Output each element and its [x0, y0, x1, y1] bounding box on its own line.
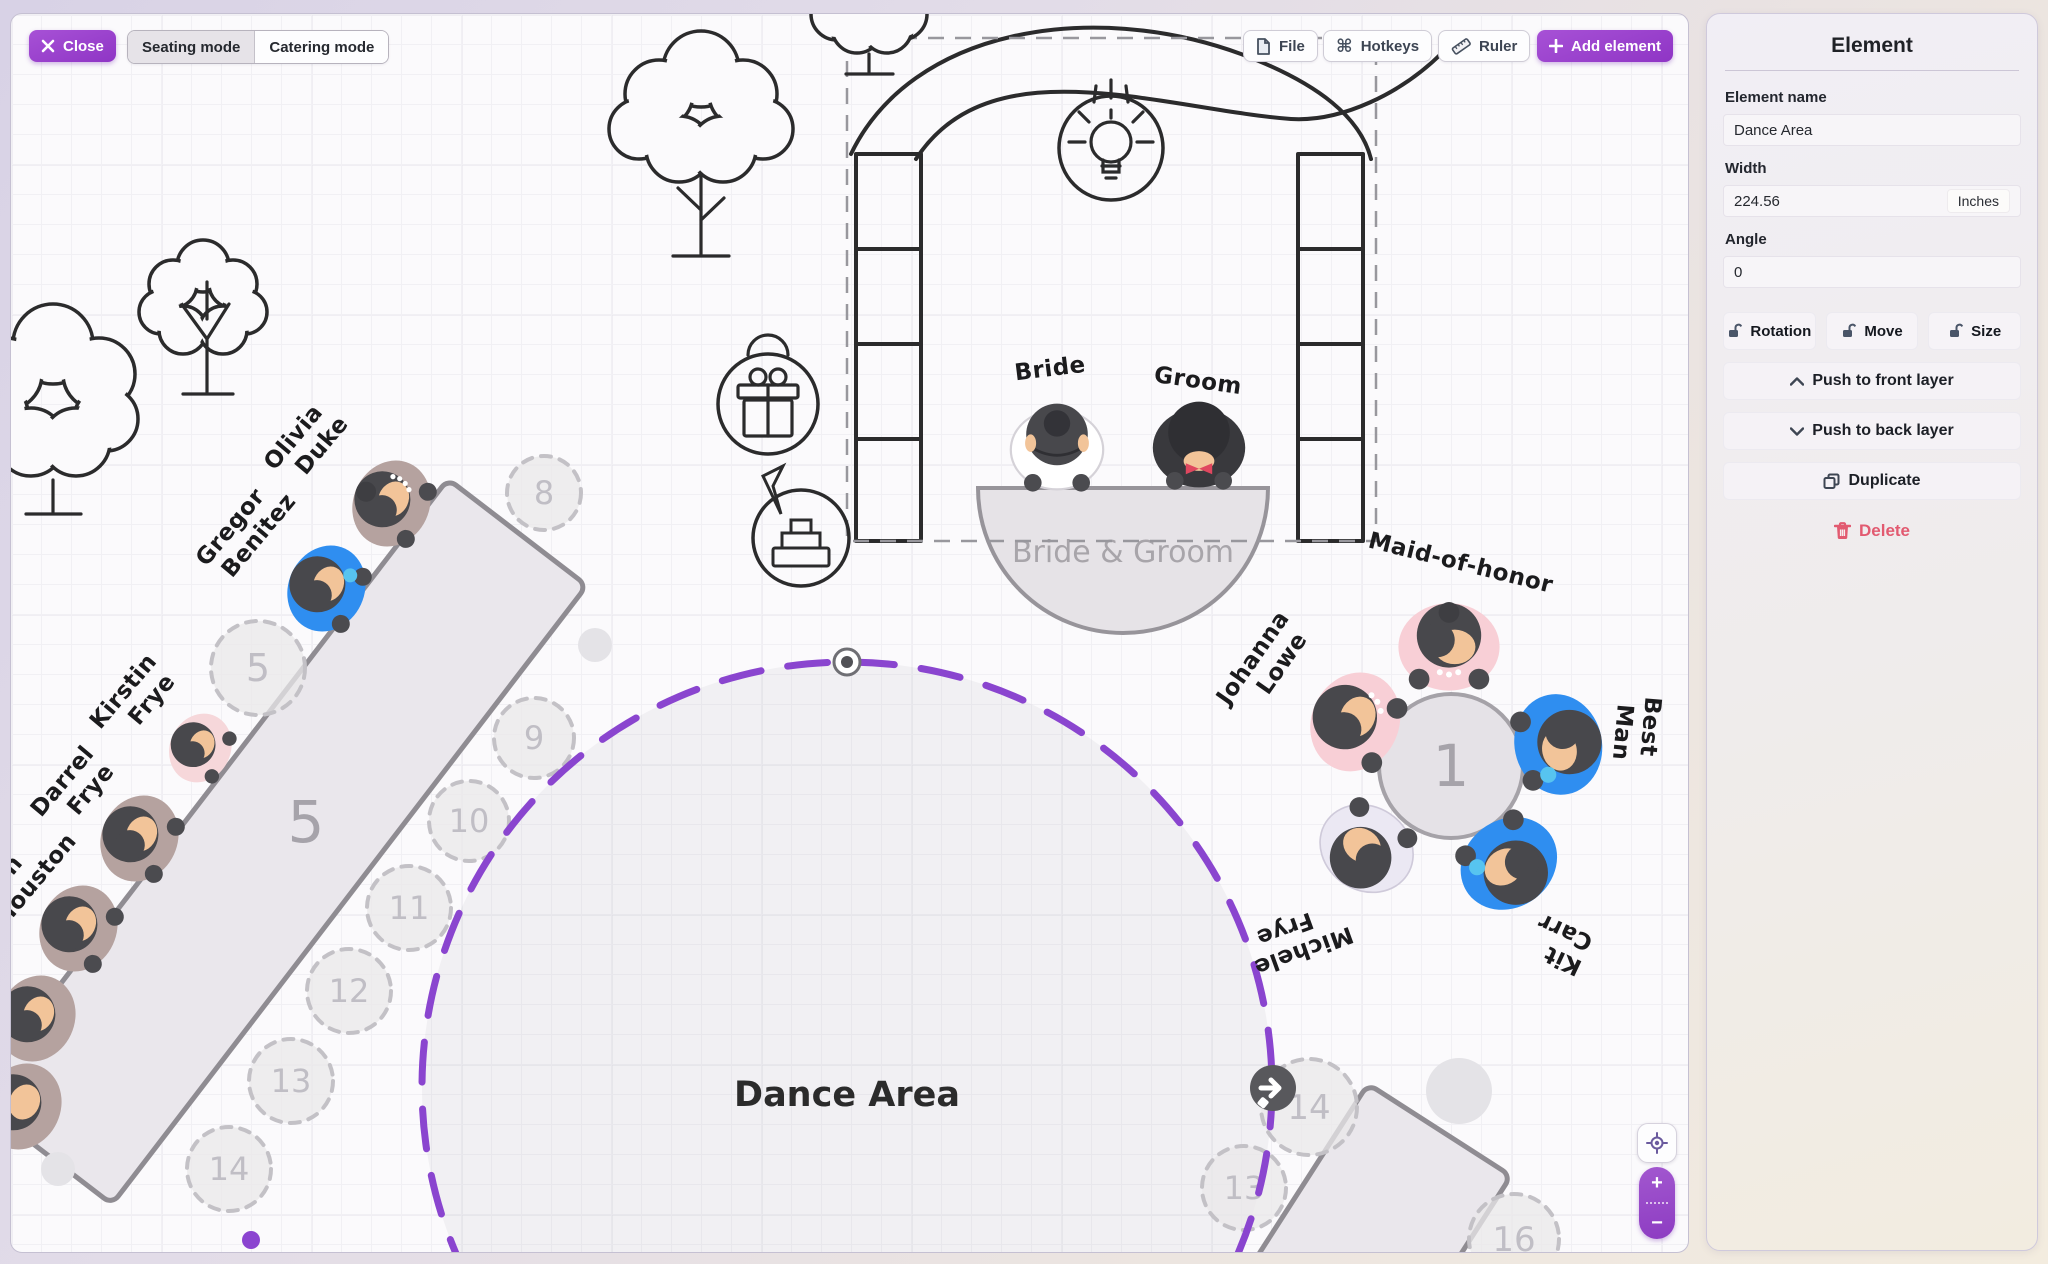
trash-icon	[1834, 522, 1851, 540]
svg-text:10: 10	[449, 802, 490, 840]
width-input[interactable]: 224.56 Inches	[1723, 185, 2021, 217]
duplicate-icon	[1823, 473, 1840, 490]
svg-text:Best: Best	[1634, 696, 1665, 758]
tree-small-left[interactable]	[139, 240, 267, 394]
svg-text:Bride: Bride	[1013, 352, 1087, 386]
svg-text:5: 5	[246, 646, 270, 690]
svg-text:11: 11	[389, 889, 430, 927]
seat-placeholder	[41, 1152, 75, 1186]
zoom-in-button[interactable]: +	[1651, 1173, 1663, 1193]
element-name-label: Element name	[1725, 89, 2019, 106]
chevron-down-icon	[1790, 427, 1804, 436]
delete-button[interactable]: Delete	[1723, 514, 2021, 548]
svg-text:Man: Man	[1607, 703, 1638, 761]
add-element-button[interactable]: Add element	[1537, 30, 1673, 62]
guest-label-michele: Michele Frye	[1241, 895, 1356, 980]
guest-label-maid-of-honor: Maid-of-honor	[1366, 528, 1556, 599]
lock-open-icon	[1841, 323, 1857, 339]
tree-top-clipped[interactable]	[811, 14, 927, 74]
tree-left-edge[interactable]	[11, 304, 138, 514]
svg-text:Groom: Groom	[1152, 362, 1243, 400]
seat-placeholder	[578, 628, 612, 662]
svg-text:14: 14	[209, 1150, 250, 1188]
seating-mode-tab[interactable]: Seating mode	[128, 31, 254, 63]
close-button[interactable]: Close	[29, 30, 116, 62]
zoom-divider	[1646, 1202, 1668, 1204]
lock-open-icon	[1727, 323, 1743, 339]
groom-label: Groom	[1152, 362, 1243, 400]
svg-text:12: 12	[329, 972, 370, 1010]
gift-icon[interactable]	[718, 335, 818, 454]
command-icon: ⌘	[1336, 36, 1353, 57]
svg-text:9: 9	[524, 719, 544, 757]
recenter-button[interactable]	[1637, 1123, 1677, 1163]
lock-move-button[interactable]: Move	[1826, 312, 1919, 350]
mode-switcher: Seating mode Catering mode	[127, 30, 389, 64]
svg-text:16: 16	[1492, 1220, 1535, 1252]
width-label: Width	[1725, 160, 2019, 177]
tree-top-center[interactable]	[609, 31, 793, 256]
zoom-out-button[interactable]: −	[1651, 1213, 1663, 1233]
lock-open-icon	[1948, 323, 1964, 339]
file-button[interactable]: File	[1243, 30, 1318, 62]
lock-rotation-button[interactable]: Rotation	[1723, 312, 1816, 350]
element-panel: Element Element name Dance Area Width 22…	[1706, 13, 2038, 1251]
seat-placeholder	[1426, 1058, 1492, 1124]
groom-avatar[interactable]	[1153, 402, 1245, 490]
duplicate-button[interactable]: Duplicate	[1723, 462, 2021, 500]
guest-label-kit: Kit Carr	[1522, 908, 1597, 980]
guest-avatar-maid-of-honor[interactable]	[1398, 602, 1499, 691]
svg-text:13: 13	[271, 1062, 312, 1100]
cake-icon[interactable]	[753, 466, 849, 586]
lock-buttons-row: Rotation Move Size	[1723, 312, 2021, 350]
wedding-arch[interactable]	[851, 28, 1443, 541]
hotkeys-button[interactable]: ⌘ Hotkeys	[1323, 30, 1432, 62]
bride-label: Bride	[1013, 352, 1087, 386]
svg-text:Maid-of-honor: Maid-of-honor	[1366, 528, 1556, 599]
catering-mode-tab[interactable]: Catering mode	[254, 31, 388, 63]
angle-input[interactable]: 0	[1723, 256, 2021, 288]
plus-icon	[1549, 39, 1563, 53]
dance-area-rotate-handle[interactable]	[834, 649, 860, 675]
dance-area-resize-handle[interactable]	[1250, 1065, 1296, 1111]
bride-avatar[interactable]	[1011, 404, 1103, 492]
ruler-icon	[1451, 37, 1471, 55]
width-unit-select[interactable]: Inches	[1947, 189, 2010, 213]
lock-size-button[interactable]: Size	[1928, 312, 2021, 350]
table-5-number: 5	[288, 788, 325, 856]
svg-text:8: 8	[534, 474, 554, 512]
floorplan-canvas[interactable]: 5 1 Bride & Groom	[10, 13, 1689, 1253]
ruler-button[interactable]: Ruler	[1438, 30, 1530, 62]
dance-area-label: Dance Area	[734, 1075, 960, 1115]
crosshair-icon	[1646, 1132, 1668, 1154]
chevron-up-icon	[1790, 377, 1804, 386]
close-icon	[41, 39, 55, 53]
angle-label: Angle	[1725, 231, 2019, 248]
guest-label-best-man: Best Man	[1607, 693, 1666, 763]
zoom-controls: + −	[1639, 1167, 1675, 1239]
file-icon	[1256, 38, 1271, 55]
guest-label-kirstin: Kirstin Frye	[85, 649, 183, 752]
element-name-input[interactable]: Dance Area	[1723, 114, 2021, 146]
guest-label-gregor: Gregor Benitez	[191, 471, 301, 588]
panel-divider	[1725, 70, 2019, 71]
push-back-button[interactable]: Push to back layer	[1723, 412, 2021, 450]
guest-label-olivia: Olivia Duke	[259, 394, 354, 493]
guest-label-johanna: Johanna Lowe	[1210, 606, 1317, 727]
push-front-button[interactable]: Push to front layer	[1723, 362, 2021, 400]
dance-area-vertex-dot[interactable]	[242, 1231, 260, 1249]
table-1-number: 1	[1433, 732, 1470, 800]
panel-title: Element	[1723, 34, 2021, 58]
